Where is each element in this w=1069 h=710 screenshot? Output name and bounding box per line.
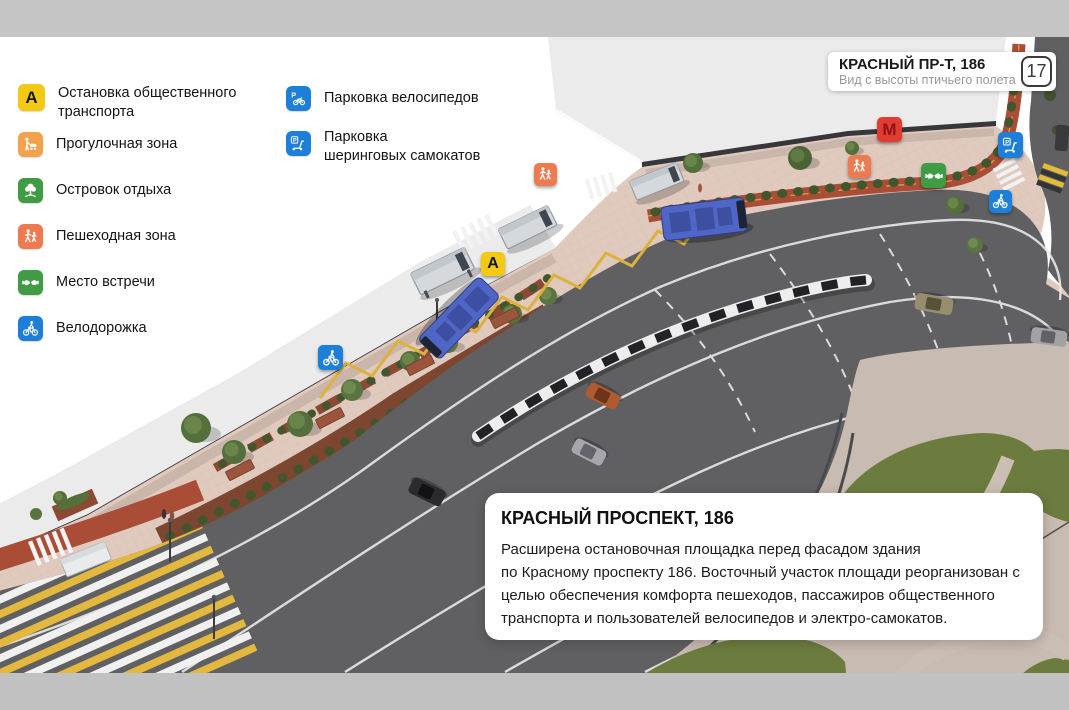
- info-card: КРАСНЫЙ ПРОСПЕКТ, 186 Расширена останово…: [485, 493, 1043, 640]
- legend-label: Прогулочная зона: [56, 135, 177, 154]
- bottom-gray-band: [0, 673, 1069, 710]
- view-title-card: КРАСНЫЙ ПР-Т, 186 Вид с высоты птичьего …: [828, 52, 1056, 91]
- top-gray-band: [0, 0, 1069, 37]
- car-top-right: [1054, 124, 1069, 151]
- scooter-parking-marker: [998, 132, 1023, 158]
- bike-parking-icon: [286, 86, 311, 111]
- rest-island-icon: [18, 178, 43, 203]
- pedestrian-zone-marker: [534, 163, 557, 186]
- legend-item-rest-island: Островок отдыха: [18, 178, 171, 203]
- legend-label-line2: шеринговых самокатов: [324, 147, 480, 166]
- bus-stop-icon: A: [18, 84, 45, 111]
- legend-item-stroll-zone: Прогулочная зона: [18, 132, 177, 157]
- slide-number: 17: [1021, 56, 1052, 87]
- legend-item-scooter-parking: Парковка шеринговых самокатов: [286, 128, 480, 166]
- legend-label: Место встречи: [56, 273, 155, 292]
- view-subtitle: Вид с высоты птичьего полета: [839, 73, 1016, 87]
- legend-item-meeting-place: Место встречи: [18, 270, 155, 295]
- metro-marker-letter: М: [882, 121, 896, 138]
- bike-lane-icon: [18, 316, 43, 341]
- slide: P P: [0, 0, 1069, 710]
- legend-label: Велодорожка: [56, 319, 147, 338]
- stroller-icon: [18, 132, 43, 157]
- view-title: КРАСНЫЙ ПР-Т, 186: [839, 56, 1016, 73]
- info-card-title: КРАСНЫЙ ПРОСПЕКТ, 186: [501, 508, 1023, 529]
- bike-lane-marker-right: [989, 190, 1012, 213]
- legend-label: Остановка общественного транспорта: [58, 84, 253, 122]
- meeting-place-icon: [18, 270, 43, 295]
- legend-item-bike-lane: Велодорожка: [18, 316, 147, 341]
- meeting-place-marker: [921, 163, 946, 188]
- legend-item-bus-stop: A Остановка общественного транспорта: [18, 84, 253, 122]
- scooter-parking-icon: [286, 131, 311, 156]
- legend-item-bike-parking: Парковка велосипедов: [286, 86, 479, 111]
- legend-item-pedestrian-zone: Пешеходная зона: [18, 224, 176, 249]
- legend-label-line1: Парковка: [324, 128, 480, 147]
- legend-label: Островок отдыха: [56, 181, 171, 200]
- info-card-text-line: транспорта и пользователей велосипедов и…: [501, 607, 1023, 630]
- bus-stop-marker: A: [481, 252, 505, 276]
- bus-stop-letter: A: [25, 89, 37, 106]
- legend-label: Пешеходная зона: [56, 227, 176, 246]
- bus-stop-marker-letter: A: [487, 256, 499, 272]
- metro-marker: М: [877, 117, 902, 142]
- info-card-text-line: Расширена остановочная площадка перед фа…: [501, 538, 1023, 561]
- pedestrian-zone-icon: [18, 224, 43, 249]
- legend-label: Парковка велосипедов: [324, 89, 479, 108]
- pedestrian-zone-marker-2: [848, 155, 871, 178]
- legend-label: Парковка шеринговых самокатов: [324, 128, 480, 166]
- info-card-text-line: целью обеспечения комфорта пешеходов, па…: [501, 584, 1023, 607]
- bike-lane-marker-left: [318, 345, 343, 370]
- info-card-text-line: по Красному проспекту 186. Восточный уча…: [501, 561, 1023, 584]
